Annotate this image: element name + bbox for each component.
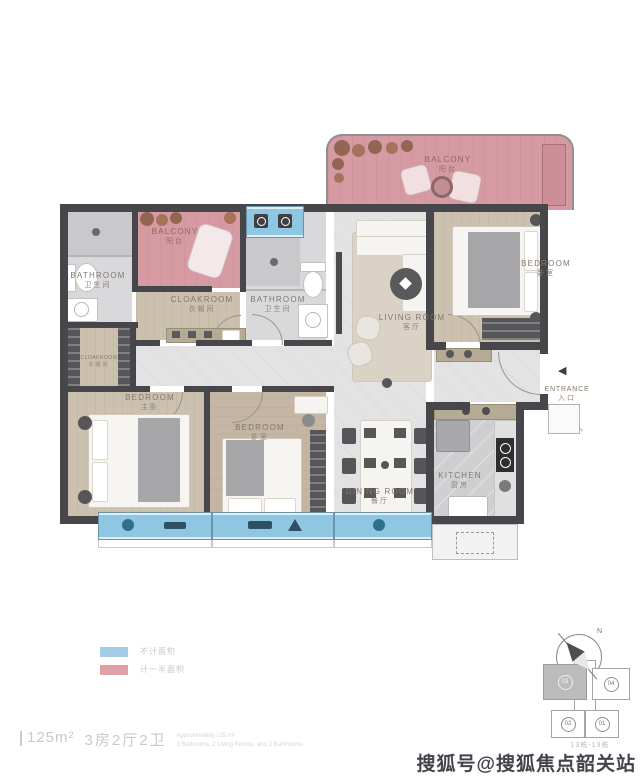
room-label-bedroom-left: BEDROOM 主卧 [105, 394, 195, 411]
wall [430, 516, 524, 524]
shower-glass [64, 255, 132, 257]
summary-en-line1: Approximately 125 m² [177, 732, 303, 741]
room-label-living: LIVING ROOM 客厅 [362, 314, 462, 331]
wardrobe [482, 318, 540, 340]
wall [60, 322, 138, 328]
placemat [364, 458, 376, 468]
burner-icon [500, 457, 511, 468]
dryer-drum-icon [281, 217, 290, 226]
room-label-cloakroom-left: CLOAKROOM 衣帽间 [64, 356, 134, 368]
placemat [394, 458, 406, 468]
legend-label: 不计面积 [140, 646, 176, 657]
room-label-balcony-left: BALCONY 阳台 [140, 228, 210, 245]
plant-icon [352, 144, 365, 157]
dining-chair [342, 458, 356, 474]
legend-item-balcony: 计一半面积 [100, 664, 185, 675]
hanging-clothes [204, 331, 212, 338]
room-label-bedroom-mid: BEDROOM 卧室 [215, 424, 305, 441]
plant-icon [334, 173, 344, 183]
hanging-clothes [188, 331, 196, 338]
wall [262, 386, 334, 392]
pillow [524, 272, 538, 312]
entry-decor [464, 350, 472, 358]
desk [294, 396, 328, 414]
sofa-seat [356, 236, 428, 256]
plant-icon [332, 158, 344, 170]
room-label-dining: DINING ROOM 餐厅 [330, 488, 430, 505]
corridor-floor [136, 346, 334, 386]
counter-bowl [482, 407, 490, 415]
sink-basin [74, 302, 89, 317]
plant-icon [368, 140, 382, 154]
wall [334, 204, 548, 212]
window-decal-icon [288, 519, 302, 531]
dining-chair [342, 428, 356, 444]
entry-decor [446, 350, 454, 358]
floor-lamp [382, 378, 392, 388]
wall [516, 406, 524, 524]
wall [284, 340, 332, 346]
balcony-table [431, 176, 453, 198]
legend-item-window: 不计面积 [100, 646, 176, 657]
room-label-balcony-top: BALCONY 阳台 [388, 156, 508, 173]
shower-head [92, 228, 100, 236]
room-label-kitchen: KITCHEN 厨房 [415, 472, 505, 489]
washer-drum-icon [257, 217, 266, 226]
table-centerpiece [381, 461, 389, 469]
wall [210, 386, 232, 392]
wall [204, 386, 210, 524]
legend-swatch-pink [100, 665, 128, 675]
pillow [92, 420, 108, 460]
wall [136, 340, 160, 346]
placemat [364, 428, 376, 438]
wall [196, 340, 252, 346]
placemat [394, 428, 406, 438]
title-divider [20, 731, 22, 746]
plant-icon [401, 140, 413, 152]
entrance-arrow-icon: ◀ [558, 364, 566, 377]
bedroom-left-window [98, 512, 212, 540]
tv-console [336, 252, 342, 334]
water-heater-box [456, 532, 494, 554]
plant-icon [170, 212, 182, 224]
plant-icon [334, 140, 350, 156]
room-label-bathroom-mid: BATHROOM 卫生间 [242, 296, 314, 313]
wall [540, 204, 548, 354]
toilet-bowl [303, 271, 323, 298]
watermark-text: 搜狐号@搜狐焦点韶关站 [290, 749, 636, 776]
bedroom-mid-window [212, 512, 334, 540]
wall [426, 402, 434, 524]
plant-icon [140, 212, 154, 226]
washer-icon [254, 214, 268, 228]
summary-english: Approximately 125 m² 3 Bedrooms, 2 Livin… [177, 732, 303, 750]
wardrobe [310, 430, 326, 516]
keyplan-unit-04: 04 [592, 668, 630, 700]
wall [480, 342, 548, 350]
wall [136, 286, 212, 292]
blanket [226, 440, 264, 496]
legend-label: 计一半面积 [140, 664, 185, 675]
hanging-clothes [172, 331, 180, 338]
kitchen-sink [448, 496, 488, 518]
balcony-cabinet [542, 144, 566, 206]
nightstand [78, 490, 92, 504]
legend-swatch-blue [100, 647, 128, 657]
nightstand [78, 416, 92, 430]
sink-basin [305, 312, 321, 328]
room-label-entrance: ENTRANCE 入口 [535, 386, 599, 402]
window-decal-icon [248, 521, 272, 529]
plant-icon [156, 214, 168, 226]
pillow [92, 462, 108, 502]
wall [516, 402, 548, 410]
fridge [436, 420, 470, 452]
window-decal-icon [373, 519, 385, 531]
keyplan-unit-02: 02 [551, 710, 585, 738]
burner-icon [500, 443, 511, 454]
window-decal-icon [164, 522, 186, 529]
window-decal-icon [122, 519, 134, 531]
layout-title: 3房2厅2卫 [85, 729, 167, 750]
floor-plan: BALCONY 阳台 BALCONY 阳台 BATHROOM 卫生间 BATHR… [0, 0, 642, 778]
dryer-icon [278, 214, 292, 228]
wall [60, 386, 150, 392]
unit-summary: 125m² 3房2厅2卫 Approximately 125 m² 3 Bedr… [20, 729, 303, 750]
compass-north-label: N [597, 628, 602, 635]
room-label-cloakroom-mid: CLOAKROOM 衣帽间 [152, 296, 252, 313]
area-title: 125m² [27, 729, 75, 746]
ac-platform [548, 404, 580, 434]
summary-en-line2: 3 Bedrooms, 2 Living Rooms, and 2 Bathro… [177, 741, 303, 750]
room-label-bedroom-right: BEDROOM 卧室 [496, 260, 596, 277]
room-label-bathroom-left: BATHROOM 卫生间 [62, 272, 134, 289]
plant-icon [386, 142, 398, 154]
shower-head [270, 258, 278, 266]
wall [430, 342, 446, 350]
plant-icon [224, 212, 236, 224]
blanket [138, 418, 180, 502]
wall [430, 402, 470, 410]
keyplan-unit-01: 01 [585, 710, 619, 738]
